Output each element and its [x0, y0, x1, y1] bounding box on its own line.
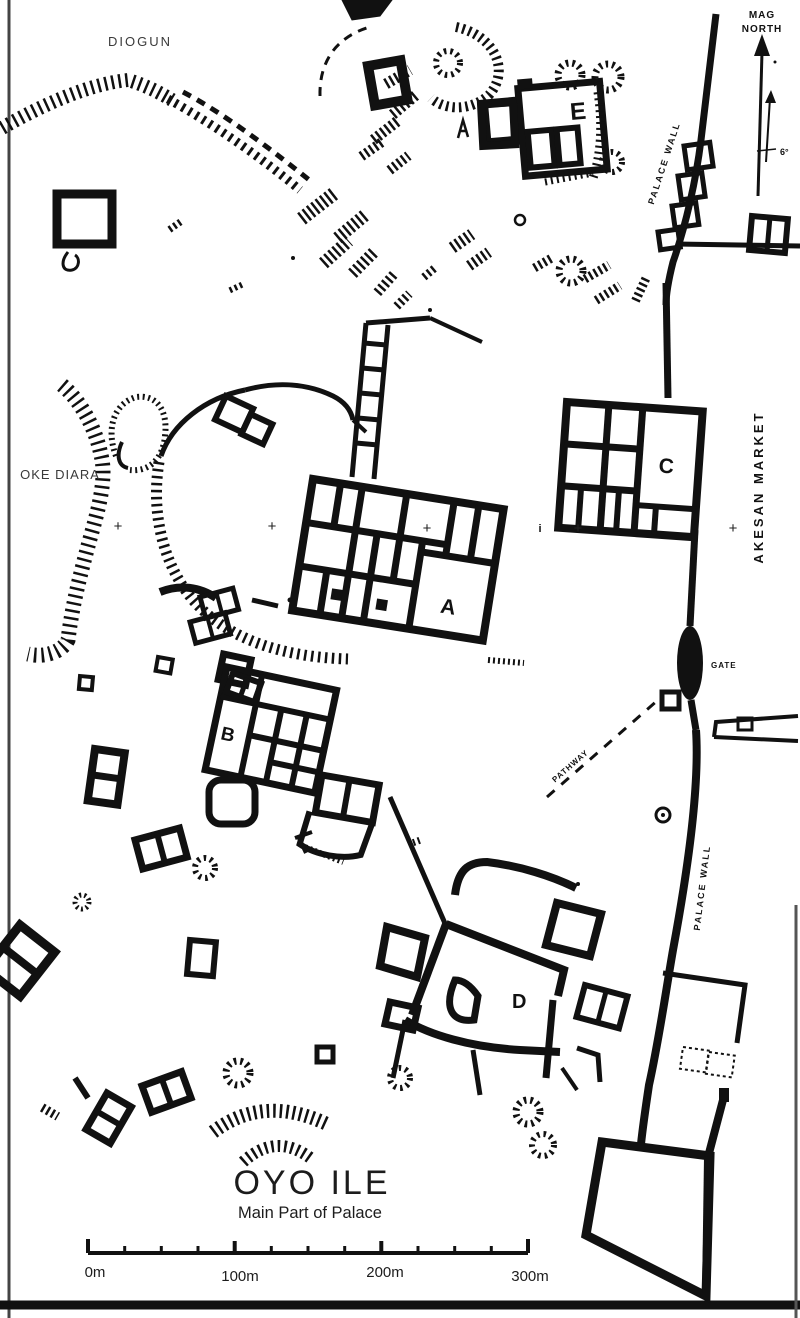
pathway: PATHWAY: [547, 700, 658, 797]
map-title: OYO ILE: [233, 1164, 390, 1202]
palace-wall-lower-label: PALACE WALL: [692, 844, 712, 931]
courtyard-building: [298, 773, 379, 866]
escarpment-hachures: [2, 27, 499, 655]
north-label: NORTH: [742, 24, 783, 35]
compound-c: C: [558, 402, 702, 537]
enclosure-structure: [214, 396, 275, 444]
scale-100m: 100m: [221, 1268, 259, 1285]
small-a-mark: [458, 120, 468, 138]
compound-b: B: [199, 654, 339, 793]
gate-label: GATE: [711, 661, 737, 670]
compound-a-label: A: [439, 595, 458, 620]
akesan-market-label: AKESAN MARKET: [751, 410, 766, 563]
map-labels: DIOGUN OKE DIARA AKESAN MARKET PALACE WA…: [20, 34, 766, 931]
wall-branch-east: [714, 716, 798, 741]
oke-diara-label: OKE DIARA: [20, 467, 100, 482]
map-subtitle: Main Part of Palace: [238, 1204, 382, 1222]
i-mark: i: [538, 523, 541, 535]
palace-wall-upper-label: PALACE WALL: [646, 120, 682, 205]
survey-cross: +: [423, 520, 432, 537]
compound-a-hachure: [488, 660, 524, 663]
pathway-label: PATHWAY: [550, 748, 590, 784]
compound-e-label: E: [569, 98, 587, 126]
survey-cross: +: [114, 518, 123, 535]
diogun-label: DIOGUN: [108, 34, 172, 49]
title-hachure-arcs: [213, 1111, 327, 1162]
survey-cross: +: [729, 520, 738, 537]
compound-d-label: D: [512, 991, 526, 1013]
map-page: A B C E: [0, 0, 800, 1318]
southeast-enclosure: [586, 1100, 723, 1296]
building-east-of-d: [576, 985, 627, 1028]
north-arrow: MAG NORTH 6°: [742, 10, 789, 196]
palace-gate: [662, 530, 703, 730]
survey-cross: +: [268, 518, 277, 535]
ladder-road: [352, 318, 482, 479]
palace-wall-upper: [658, 14, 800, 305]
title-block: OYO ILE Main Part of Palace: [233, 1164, 390, 1222]
survey-cross: +: [574, 520, 583, 537]
compound-e: E: [477, 72, 607, 179]
scale-200m: 200m: [366, 1264, 404, 1281]
compound-e-hachure-right: [593, 92, 601, 178]
palace-wall-lower: [641, 730, 745, 1144]
oyo-ile-map: A B C E: [0, 0, 800, 1318]
compound-b-label: B: [219, 723, 237, 746]
scale-bar: 0m 100m 200m 300m: [85, 1239, 549, 1285]
declination-label: 6°: [780, 147, 789, 157]
compound-a: A: [292, 479, 503, 641]
scale-0m: 0m: [85, 1264, 106, 1281]
compound-c-label: C: [658, 455, 675, 479]
mag-label: MAG: [749, 10, 775, 21]
scale-300m: 300m: [511, 1268, 549, 1285]
